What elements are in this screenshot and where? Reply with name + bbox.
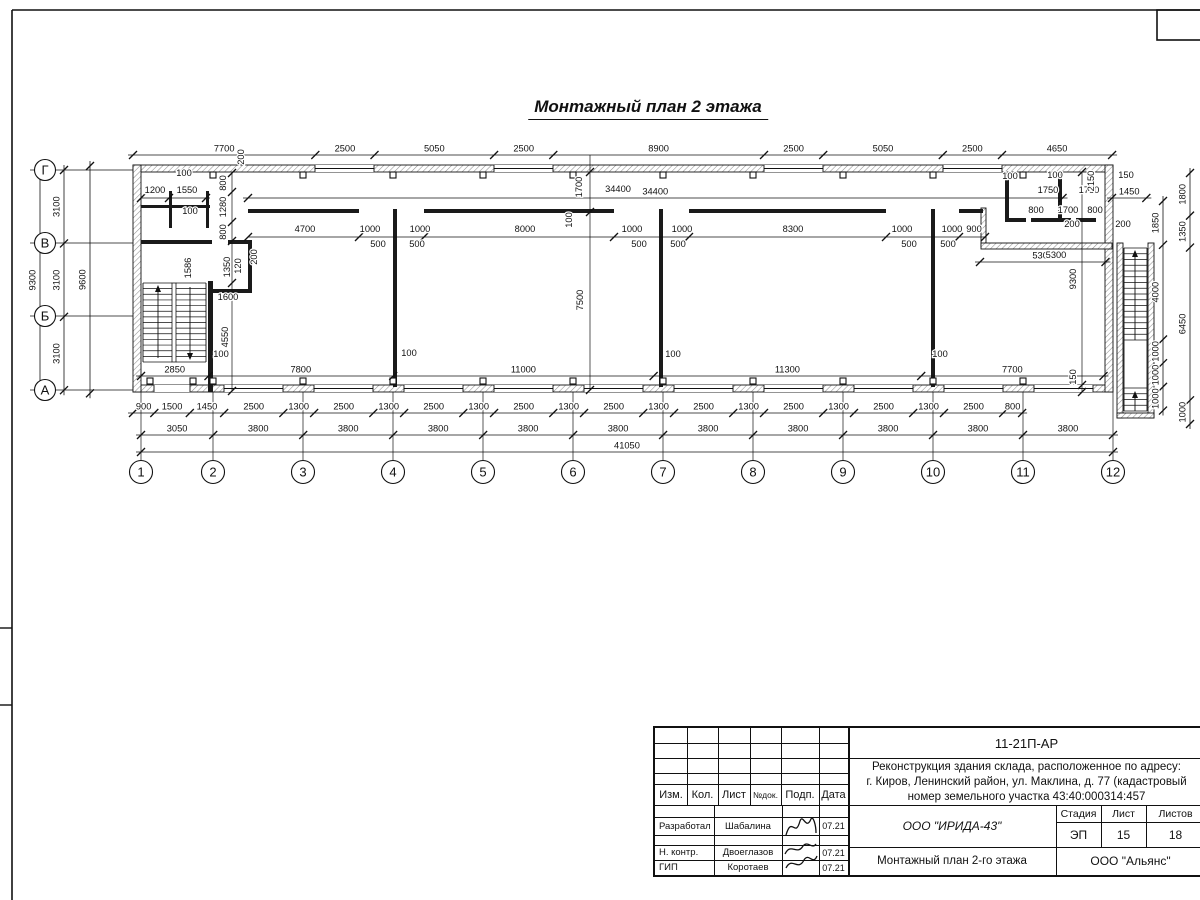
tb-name-developer: Шабалина <box>714 817 782 835</box>
axis-label-col: 12 <box>1106 465 1120 480</box>
dim-label: 2500 <box>783 402 804 412</box>
dim-label: 3050 <box>167 424 188 434</box>
axis-label-col: 5 <box>479 465 486 480</box>
tb-company: ООО "Альянс" <box>1056 847 1200 875</box>
pilaster-mark <box>300 172 306 178</box>
dim-label: 3800 <box>338 424 359 434</box>
signature-developer <box>782 811 819 841</box>
dim-label: 1350 <box>1178 221 1188 242</box>
pilaster-mark <box>210 378 216 384</box>
pilaster-mark <box>930 378 936 384</box>
dim-label: 200 <box>1064 219 1080 229</box>
dim-label: 4650 <box>1047 144 1068 154</box>
dim-label: 1450 <box>197 402 218 412</box>
tb-drawing-name: Монтажный план 2-го этажа <box>848 847 1056 875</box>
dim-label: 100 <box>932 349 948 359</box>
partition-wall <box>141 205 210 208</box>
dim-label: 6450 <box>1178 314 1188 335</box>
dim-label: 500 <box>670 239 686 249</box>
tb-listov-value: 18 <box>1146 822 1200 847</box>
pilaster-mark <box>1020 378 1026 384</box>
dim-label: 1700 <box>574 177 584 198</box>
dim-label: 2500 <box>963 402 984 412</box>
door-opening <box>154 385 190 392</box>
partition-wall <box>689 209 886 213</box>
title-block: Изм. Кол. Лист №док. Подп. Дата Разработ… <box>653 726 1200 877</box>
axis-label-row: Г <box>41 163 48 178</box>
pilaster-mark <box>570 378 576 384</box>
pilaster-mark <box>660 378 666 384</box>
dim-label: 150 <box>1068 369 1078 385</box>
dim-label: 1000 <box>892 224 913 234</box>
dim-label: 7700 <box>214 144 235 154</box>
tb-stadia-value: ЭП <box>1056 822 1101 847</box>
dim-label: 1300 <box>738 402 759 412</box>
tb-org: ООО "ИРИДА-43" <box>848 805 1056 847</box>
dim-label: 8300 <box>783 224 804 234</box>
tb-desc-line3: номер земельного участка 43:40:000314:45… <box>848 789 1200 804</box>
dim-label: 1800 <box>1178 184 1188 205</box>
dim-label: 1000 <box>1151 388 1161 409</box>
tb-col-list: Лист <box>718 784 750 805</box>
stair-stringer <box>172 283 176 362</box>
dim-label: 1586 <box>183 258 193 279</box>
pilaster-mark <box>210 172 216 178</box>
dim-label: 200 <box>1115 219 1131 229</box>
frame-corner-box <box>1157 10 1200 40</box>
dim-label: 1000 <box>410 224 431 234</box>
dim-label: 2500 <box>513 402 534 412</box>
pilaster-mark <box>930 172 936 178</box>
axis-label-col: 10 <box>926 465 940 480</box>
dim-label: 2500 <box>335 144 356 154</box>
dim-label: 4550 <box>220 327 230 348</box>
tb-name-ncontrol: Двоеглазов <box>714 845 782 860</box>
dim-label: 100 <box>1047 170 1063 180</box>
pilaster-mark <box>660 172 666 178</box>
dim-label: 1500 <box>162 402 183 412</box>
axis-label-col: 11 <box>1016 465 1030 480</box>
dim-label: 9300 <box>28 270 38 291</box>
dim-label: 1200 <box>145 185 166 195</box>
dim-label: 100 <box>176 168 192 178</box>
partition-wall <box>659 209 663 387</box>
axis-label-col: 9 <box>839 465 846 480</box>
axis-label-col: 2 <box>209 465 216 480</box>
dim-label: 3800 <box>878 424 899 434</box>
tb-stadia-label: Стадия <box>1056 805 1101 822</box>
tb-list-label: Лист <box>1101 805 1146 822</box>
pilaster-mark <box>190 378 196 384</box>
dim-label: 120 <box>233 258 243 274</box>
dim-label: 2850 <box>164 365 185 375</box>
dim-label: 3800 <box>788 424 809 434</box>
dim-label: 100 <box>401 348 417 358</box>
axis-label-row: А <box>41 383 50 398</box>
tb-desc-line1: Реконструкция здания склада, расположенн… <box>848 759 1200 774</box>
dim-label: 3800 <box>1058 424 1079 434</box>
dim-label: 2500 <box>783 144 804 154</box>
tb-listov-label: Листов <box>1146 805 1200 822</box>
dim-label: 800 <box>218 224 228 240</box>
dim-label: 34400 <box>642 187 668 197</box>
dim-label: 3800 <box>428 424 449 434</box>
dim-label: 2500 <box>962 144 983 154</box>
dim-label: 1850 <box>1151 213 1161 234</box>
dim-label: 3800 <box>968 424 989 434</box>
dim-label: 500 <box>409 239 425 249</box>
pilaster-mark <box>300 378 306 384</box>
partition-wall <box>1005 218 1026 222</box>
dim-label: 41050 <box>614 441 640 451</box>
dim-label: 800 <box>1028 205 1044 215</box>
pilaster-mark <box>147 378 153 384</box>
dim-label: 500 <box>901 239 917 249</box>
dim-label: 100 <box>213 349 229 359</box>
tb-line <box>655 743 848 744</box>
dim-label: 1350 <box>222 257 232 278</box>
dim-label: 9600 <box>78 269 88 290</box>
tb-name-gip: Коротаев <box>714 860 782 875</box>
axis-label-col: 1 <box>137 465 144 480</box>
dim-label: 1000 <box>672 224 693 234</box>
dim-label: 8000 <box>515 224 536 234</box>
dim-label: 1300 <box>648 402 669 412</box>
dim-label: 1300 <box>828 402 849 412</box>
tb-line <box>655 773 848 774</box>
axis-label-col: 3 <box>299 465 306 480</box>
dim-label: 3800 <box>698 424 719 434</box>
dim-label: 11000 <box>511 365 536 375</box>
dim-label: 8900 <box>648 144 669 154</box>
dim-label: 500 <box>940 239 956 249</box>
dim-label: 9300 <box>1068 269 1078 290</box>
pilaster-mark <box>750 378 756 384</box>
dim-label: 1000 <box>1151 365 1161 386</box>
tb-role-ncontrol: Н. контр. <box>655 845 718 860</box>
tb-col-izm: Изм. <box>655 784 687 805</box>
dim-label: 1300 <box>378 402 399 412</box>
dim-label: 4000 <box>1151 282 1161 303</box>
dim-label: 2500 <box>333 402 354 412</box>
dim-label: 800 <box>218 175 228 191</box>
dim-label: 7700 <box>1002 365 1023 375</box>
dim-label: 7800 <box>290 365 311 375</box>
tb-doc-code: 11-21П-АР <box>848 728 1200 758</box>
axis-label-col: 7 <box>659 465 666 480</box>
exterior-wall <box>981 243 1112 249</box>
tb-role-developer: Разработал <box>655 817 718 835</box>
dim-label: 1000 <box>622 224 643 234</box>
dim-label: 2500 <box>423 402 444 412</box>
pilaster-mark <box>480 378 486 384</box>
dim-label: 1300 <box>918 402 939 412</box>
dim-label: 3800 <box>518 424 539 434</box>
dim-label: 800 <box>1005 402 1021 412</box>
pilaster-mark <box>390 172 396 178</box>
dim-label: 11300 <box>775 365 800 375</box>
exterior-wall <box>1117 243 1123 418</box>
dim-label: 500 <box>370 239 386 249</box>
dim-label: 1450 <box>1119 187 1140 197</box>
partition-wall <box>424 209 614 213</box>
tb-line <box>655 835 848 836</box>
tb-desc-line2: г. Киров, Ленинский район, ул. Маклина, … <box>848 774 1200 789</box>
pilaster-mark <box>1020 172 1026 178</box>
dim-label: 2500 <box>603 402 624 412</box>
pilaster-mark <box>480 172 486 178</box>
dim-label: 3100 <box>52 343 62 364</box>
dim-label: 200 <box>236 149 246 165</box>
tb-col-ndok: №док. <box>750 784 781 805</box>
dim-label: 800 <box>1087 205 1103 215</box>
dim-label: 5050 <box>424 144 445 154</box>
tb-col-data: Дата <box>819 784 848 805</box>
dim-label: 900 <box>966 224 982 234</box>
dim-label: 1000 <box>1178 402 1188 423</box>
dim-label: 3800 <box>608 424 629 434</box>
dim-label: 100 <box>1002 171 1018 181</box>
dim-label: 100 <box>182 206 198 216</box>
dim-label: 1700 <box>1058 205 1079 215</box>
drawing-title: Монтажный план 2 этажа <box>528 97 768 120</box>
partition-wall <box>931 209 935 387</box>
dim-label: 900 <box>136 402 152 412</box>
dim-label: 1750 <box>1038 185 1059 195</box>
dim-label: 1600 <box>218 292 239 302</box>
dim-label: 1300 <box>288 402 309 412</box>
dim-label: 34400 <box>605 184 631 194</box>
tb-date-gip: 07.21 <box>819 860 848 875</box>
drawing-sheet: 7700250050502500890025005050250046509001… <box>0 0 1200 900</box>
pilaster-mark <box>750 172 756 178</box>
partition-wall <box>959 209 983 213</box>
axis-label-col: 4 <box>389 465 396 480</box>
dim-label: 100 <box>665 349 681 359</box>
tb-list-value: 15 <box>1101 822 1146 847</box>
tb-role-gip: ГИП <box>655 860 718 875</box>
dim-label: 3100 <box>52 196 62 217</box>
dim-label: 5300 <box>1046 250 1067 260</box>
dim-label: 1300 <box>468 402 489 412</box>
dim-label: 4700 <box>295 224 316 234</box>
partition-wall <box>393 209 397 387</box>
dim-label: 5050 <box>873 144 894 154</box>
exterior-wall <box>1117 413 1154 418</box>
dim-label: 3800 <box>248 424 269 434</box>
dim-label: 1000 <box>1151 341 1161 362</box>
pilaster-mark <box>840 378 846 384</box>
dim-label: 1280 <box>218 197 228 218</box>
pilaster-mark <box>840 172 846 178</box>
tb-line <box>655 758 848 759</box>
axis-label-col: 6 <box>569 465 576 480</box>
dim-label: 200 <box>249 249 259 265</box>
dim-label: 3100 <box>52 270 62 291</box>
tb-col-kol: Кол. <box>687 784 718 805</box>
dim-label: 2500 <box>693 402 714 412</box>
dim-label: 1000 <box>942 224 963 234</box>
axis-label-row: Б <box>41 309 50 324</box>
dim-label: 150 <box>1118 170 1134 180</box>
dim-label: 2150 <box>1086 171 1096 192</box>
dim-label: 500 <box>631 239 647 249</box>
dim-label: 100 <box>564 212 574 228</box>
partition-wall <box>141 240 212 244</box>
dim-label: 1550 <box>177 185 198 195</box>
dim-label: 2500 <box>243 402 264 412</box>
dim-label: 2500 <box>513 144 534 154</box>
axis-label-col: 8 <box>749 465 756 480</box>
axis-label-row: В <box>41 236 50 251</box>
dim-label: 7500 <box>575 290 585 311</box>
tb-date-ncontrol: 07.21 <box>819 845 848 860</box>
dim-label: 1300 <box>558 402 579 412</box>
dim-label: 2500 <box>873 402 894 412</box>
tb-date-developer: 07.21 <box>819 817 848 835</box>
stair-arrow-head <box>1132 391 1138 398</box>
partition-wall <box>248 209 359 213</box>
signature-ncontrol-gip <box>782 840 819 874</box>
dim-label: 1000 <box>360 224 381 234</box>
tb-col-podp: Подп. <box>781 784 819 805</box>
